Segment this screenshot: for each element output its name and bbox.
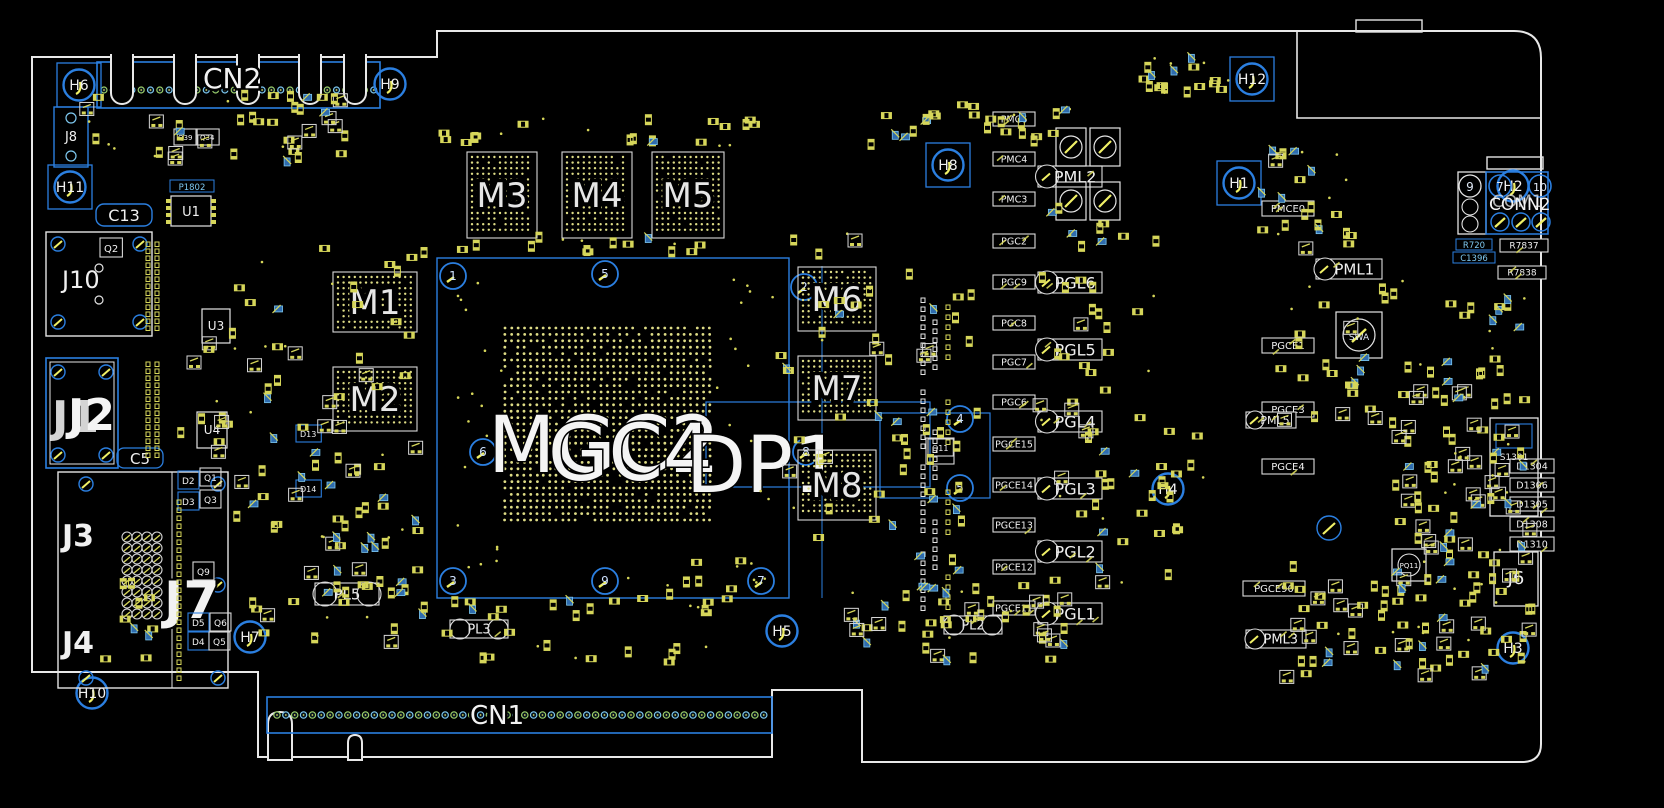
component-q2-label: Q2 xyxy=(104,244,118,255)
connector-j10-label: J10 xyxy=(60,266,100,294)
fiducial-mark: 9 xyxy=(592,568,618,594)
fiducial-mark: 5 xyxy=(947,475,973,501)
memory-site-m1: M1 xyxy=(333,272,417,332)
diode-label-d1308-text: D1308 xyxy=(1516,519,1548,530)
conn2-sub-refs: R720C1396 xyxy=(1453,239,1495,264)
fiducial-number: 3 xyxy=(449,574,457,588)
vrm-label-pgc2: PGC2 xyxy=(993,234,1035,248)
diode-label-d1308: D1308 xyxy=(1510,517,1554,531)
vrm-label-pgce14: PGCE14 xyxy=(993,478,1035,492)
mounting-hole-h12: H12 xyxy=(1230,57,1274,101)
fiducial-mark: 5 xyxy=(592,261,618,287)
mounting-hole-label: H8 xyxy=(938,158,957,174)
right-label-pgce4-text: PGCE4 xyxy=(1271,462,1304,473)
vrm-label-pgc6-text: PGC6 xyxy=(1001,397,1027,408)
mounting-hole-label: H11 xyxy=(56,180,84,196)
component-q2: Q2 xyxy=(100,238,122,257)
power-label-pgl2: PGL2 xyxy=(1036,540,1103,563)
vrm-label-pgc8: PGC8 xyxy=(993,316,1035,330)
vrm-label-pgc9-text: PGC9 xyxy=(1001,277,1027,288)
memory-label: M3 xyxy=(477,176,528,216)
connector-j8-label: J8 xyxy=(64,130,77,145)
connector-j8: J8 xyxy=(54,107,88,167)
vrm-label-pgce12: PGCE12 xyxy=(993,560,1035,574)
pcb-assembly-drawing: CN2CN11526839745MGC2GC4DP1M1M2M3M4M5M6M7… xyxy=(0,0,1664,808)
mounting-hole-label: H1 xyxy=(1229,176,1248,192)
mounting-hole-h11: H11 xyxy=(48,165,92,209)
fiducial-number: 4 xyxy=(956,412,964,426)
vrm-label-pgce13-text: PGCE13 xyxy=(995,520,1033,531)
connector-j3-label: J3 xyxy=(60,519,94,554)
connector-j2-label: J2 xyxy=(65,390,115,441)
fiducial-number: 1 xyxy=(449,269,457,283)
vrm-label-pgc2-text: PGC2 xyxy=(1001,236,1027,247)
right-label-pml3: PML3 xyxy=(1245,629,1306,649)
vrm-label-pmc4: PMC4 xyxy=(993,152,1035,166)
inductor-label-pl3-text: PL3 xyxy=(467,623,490,638)
fiducial-mark: 7 xyxy=(748,568,774,594)
component-d13-label: D13 xyxy=(300,430,316,439)
component-u3-label: U3 xyxy=(208,319,224,333)
component-d3-label: D3 xyxy=(182,498,195,508)
inductor-label-pl3: PL3 xyxy=(450,619,508,639)
vrm-label-pmc3: PMC3 xyxy=(993,192,1035,206)
vrm-label-pgc8-text: PGC8 xyxy=(1001,318,1027,329)
connector-j4-label: J4 xyxy=(60,626,94,661)
component-q5: Q5 xyxy=(209,632,230,650)
memory-label: M7 xyxy=(812,369,863,409)
component-d4-label: D4 xyxy=(192,638,205,648)
memory-label: M5 xyxy=(663,176,714,216)
diode-label-d1310: D1310 xyxy=(1510,537,1554,552)
right-label-r7837-text: R7837 xyxy=(1509,242,1538,252)
connector-conn2-label: CONN2 xyxy=(1489,195,1551,215)
mounting-hole-h1: H1 xyxy=(1217,161,1261,205)
fiducial-number: 7 xyxy=(757,574,765,588)
component-q3-label: Q3 xyxy=(204,496,217,506)
memory-label: M4 xyxy=(572,176,623,216)
vrm-label-pgce12-text: PGCE12 xyxy=(995,562,1033,573)
connector-cn1-label: CN1 xyxy=(470,701,524,731)
memory-site-m3: M3 xyxy=(467,152,537,238)
mounting-hole-label: H5 xyxy=(772,624,791,640)
component-u1: U1P1802 xyxy=(166,180,216,226)
connector-j2: J1J2 xyxy=(46,358,118,468)
component-d5-label: D5 xyxy=(192,619,205,629)
memory-site-m7: M7 xyxy=(798,356,876,420)
component-noise xyxy=(80,52,1537,683)
right-label-pgce1: PGCE1 xyxy=(1262,338,1314,354)
component-q3: Q3 xyxy=(200,490,221,508)
board-canvas: CN2CN11526839745MGC2GC4DP1M1M2M3M4M5M6M7… xyxy=(0,0,1664,808)
vrm-label-pgce15: PGCE15 xyxy=(993,437,1035,451)
component-q11: Q11 xyxy=(928,439,953,456)
component-c1396-label: C1396 xyxy=(1460,254,1488,264)
memory-site-m5: M5 xyxy=(652,152,724,238)
power-label-pgl1-text: PGL1 xyxy=(1055,604,1096,623)
vrm-label-pgc9: PGC9 xyxy=(993,275,1035,289)
right-label-pgce4: PGCE4 xyxy=(1262,459,1314,475)
component-pq11-label: PQ11 xyxy=(1400,562,1419,570)
connector-cn1: CN1 xyxy=(267,697,772,733)
board-outline xyxy=(32,31,1543,762)
memory-site-m2: M2 xyxy=(333,367,417,431)
component-q6-label: Q6 xyxy=(214,619,227,629)
fiducial-number: 9 xyxy=(601,574,609,588)
component-q1-label: Q1 xyxy=(204,474,217,484)
mounting-hole-label: H9 xyxy=(380,77,399,93)
right-edge-parts: S1301J6SWAPQ11 xyxy=(1317,312,1538,606)
vrm-label-pgc6: PGC6 xyxy=(993,395,1035,409)
mounting-hole-label: H7 xyxy=(240,630,259,646)
component-q5-label: Q5 xyxy=(213,638,226,648)
vrm-label-pgc7: PGC7 xyxy=(993,355,1035,369)
right-label-pmce0: PMCE0 xyxy=(1262,201,1314,216)
right-label-pgce90-text: PGCE90 xyxy=(1254,584,1294,595)
vrm-label-pgc7-text: PGC7 xyxy=(1001,357,1027,368)
mounting-hole-h7: H7 xyxy=(235,622,266,653)
component-c13: C13 xyxy=(96,204,152,226)
vrm-label-pmc4-text: PMC4 xyxy=(1001,154,1028,165)
diode-label-d1306-text: D1306 xyxy=(1516,480,1548,491)
inductor-label-pl2: PL2 xyxy=(944,615,1002,635)
vrm-label-pgce13: PGCE13 xyxy=(993,518,1035,534)
diode-label-d1306: D1306 xyxy=(1510,478,1554,492)
memory-site-m4: M4 xyxy=(562,152,632,238)
inductor-label-pl2-text: PL2 xyxy=(961,619,984,634)
component-q9-label: Q9 xyxy=(197,568,210,578)
fiducial-number: 6 xyxy=(479,445,487,459)
component-r720-label: R720 xyxy=(1463,241,1485,251)
diode-label-d1305-text: D1305 xyxy=(1516,499,1548,510)
right-label-r7838: R7838 xyxy=(1498,266,1546,279)
component-p1802-label: P1802 xyxy=(179,183,206,193)
connector-cn2-label: CN2 xyxy=(203,62,261,95)
component-c13-label: C13 xyxy=(108,206,140,225)
mounting-hole-h5: H5 xyxy=(767,616,798,647)
mounting-hole-h9: H9 xyxy=(375,69,406,100)
component-d4: D4 xyxy=(188,632,209,650)
fiducial-mark: 3 xyxy=(440,568,466,594)
memory-label: M8 xyxy=(812,466,863,506)
component-d2-label: D2 xyxy=(182,477,195,487)
fiducial-mark: 1 xyxy=(440,263,466,289)
component-u1-label: U1 xyxy=(182,205,200,220)
right-label-pml1: PML1 xyxy=(1314,258,1382,280)
right-label-pml1-text: PML1 xyxy=(1334,260,1374,278)
conn2-pin-9: 9 xyxy=(1466,180,1474,194)
right-label-r7837: R7837 xyxy=(1500,239,1548,253)
fiducial-number: 5 xyxy=(601,267,609,281)
connector-j10: J10 xyxy=(46,232,152,336)
fiducial-mark: 4 xyxy=(947,406,973,432)
component-d2: D2 xyxy=(178,471,199,489)
fiducial-number: 2 xyxy=(800,280,808,294)
power-label-pml2: PML2 xyxy=(1036,165,1103,188)
component-swa: SWA xyxy=(1336,312,1382,358)
mounting-hole-h8: H8 xyxy=(926,143,970,187)
mounting-hole-label: H6 xyxy=(69,78,89,94)
mounting-hole-label: H12 xyxy=(1238,72,1266,88)
